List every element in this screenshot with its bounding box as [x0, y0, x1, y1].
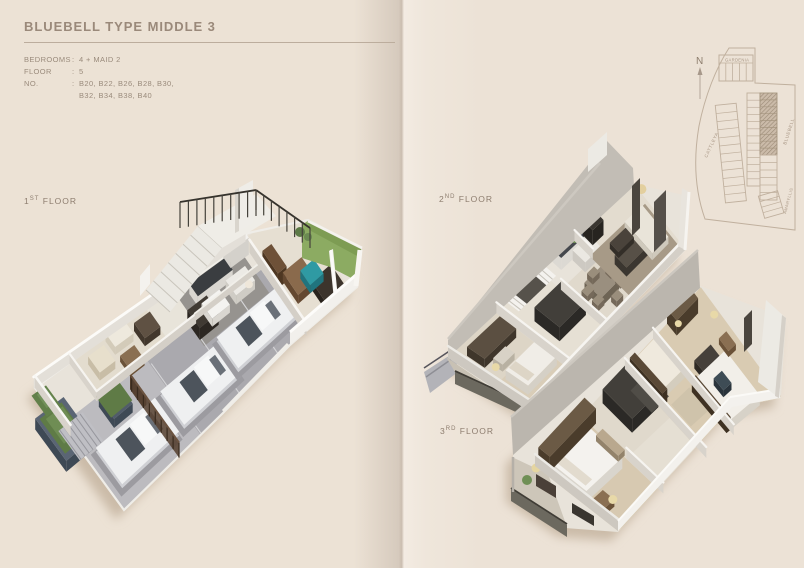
- svg-text:CATTLEYA: CATTLEYA: [703, 131, 719, 158]
- svg-text:N: N: [696, 56, 703, 67]
- svg-text:GARDENIA: GARDENIA: [725, 58, 749, 63]
- svg-text:BLUEBELL: BLUEBELL: [782, 118, 795, 146]
- svg-text:AMARYLLIS: AMARYLLIS: [782, 187, 794, 214]
